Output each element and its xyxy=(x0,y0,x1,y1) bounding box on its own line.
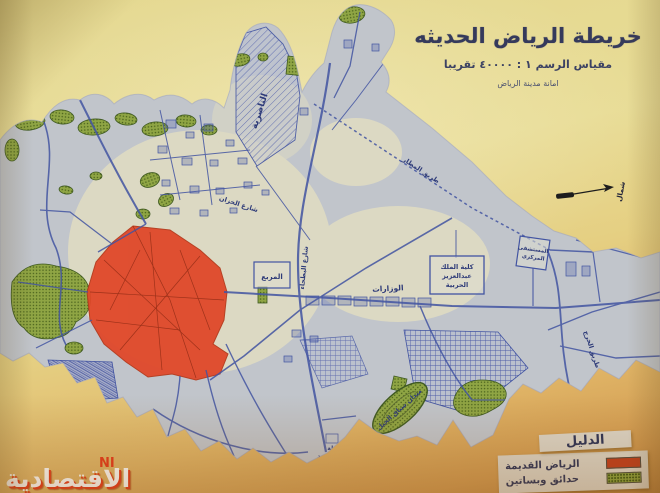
map-photo: الناصرية المربع الوزارات كلية الملك عبدا… xyxy=(0,0,660,493)
legend-swatch-gardens xyxy=(606,472,641,484)
label-ministries: الوزارات xyxy=(372,283,404,294)
north-arrow-label: شمال xyxy=(615,181,627,203)
map-scale: مقياس الرسم ١ : ٤٠٠٠٠ تقريبا xyxy=(408,58,648,71)
label-station-2: السكة الحديد xyxy=(317,453,354,460)
title-block: خريطة الرياض الحديثه مقياس الرسم ١ : ٤٠٠… xyxy=(408,24,648,88)
label-murabba: المربع xyxy=(261,273,283,281)
label-college-2: عبدالعزيز xyxy=(441,272,472,280)
legend-label-old-riyadh: الرياض القديمة xyxy=(505,459,580,473)
legend-body: الرياض القديمة حدائق وبساتين xyxy=(498,450,649,493)
label-college-3: الحربية xyxy=(446,281,468,289)
legend-title: الدليل xyxy=(539,430,632,452)
legend-label-gardens: حدائق وبساتين xyxy=(505,474,579,488)
label-college-1: كلية الملك xyxy=(440,263,473,271)
map-authority: امانة مدينة الرياض xyxy=(408,79,648,88)
watermark-fragment: NI xyxy=(99,456,115,471)
north-arrow: شمال xyxy=(556,181,627,203)
map-title: خريطة الرياض الحديثه xyxy=(408,24,648,49)
legend: الدليل الرياض القديمة حدائق وبساتين xyxy=(497,430,649,493)
legend-swatch-old-riyadh xyxy=(606,457,641,469)
